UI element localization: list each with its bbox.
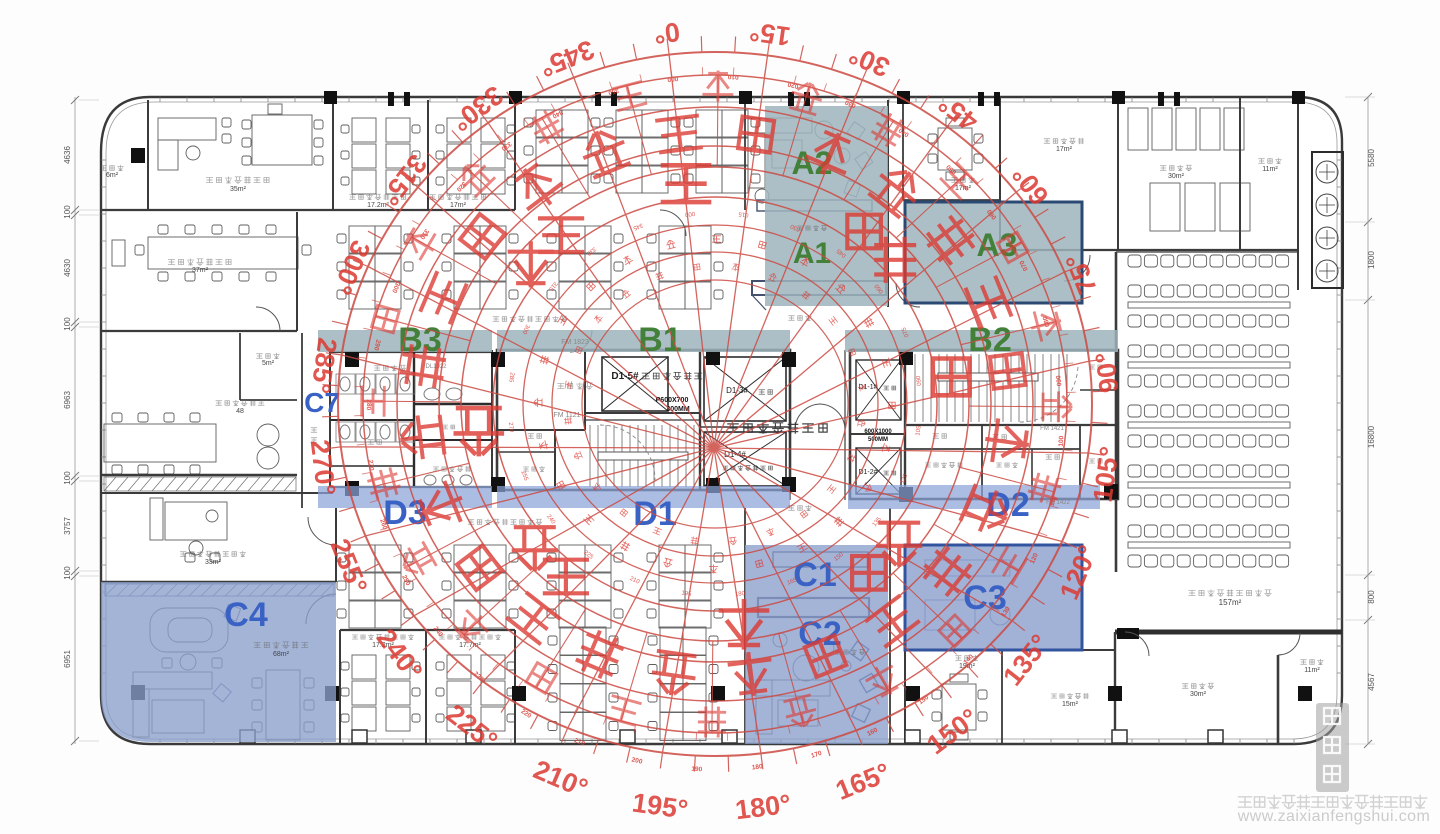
svg-text:100: 100 <box>1058 435 1066 447</box>
svg-text:0°: 0° <box>652 16 681 49</box>
svg-text:010: 010 <box>727 73 739 81</box>
svg-text:16800: 16800 <box>1367 425 1376 448</box>
svg-text:190: 190 <box>691 766 703 774</box>
svg-text:D1-5#: D1-5# <box>611 371 639 382</box>
svg-text:5m²: 5m² <box>262 360 275 367</box>
svg-text:17.2m²: 17.2m² <box>367 202 389 209</box>
svg-text:FM 1421: FM 1421 <box>1040 426 1064 432</box>
svg-text:C4: C4 <box>224 596 268 634</box>
svg-text:15m²: 15m² <box>1062 701 1079 708</box>
svg-text:48: 48 <box>236 408 244 415</box>
svg-text:6m²: 6m² <box>106 172 119 179</box>
svg-text:www.zaixianfengshui.com: www.zaixianfengshui.com <box>1237 808 1430 825</box>
svg-text:500MM: 500MM <box>868 437 888 443</box>
svg-text:6951: 6951 <box>63 650 72 668</box>
svg-text:30m²: 30m² <box>1168 173 1185 180</box>
svg-text:270: 270 <box>366 459 374 471</box>
svg-text:33m²: 33m² <box>205 559 222 566</box>
svg-text:17m²: 17m² <box>450 202 467 209</box>
svg-text:000: 000 <box>667 74 679 82</box>
svg-text:90°: 90° <box>1090 350 1125 394</box>
svg-text:6963: 6963 <box>63 391 72 409</box>
svg-text:30m²: 30m² <box>1190 691 1207 698</box>
svg-text:800: 800 <box>1367 590 1376 604</box>
svg-text:090: 090 <box>1055 375 1063 387</box>
svg-text:180: 180 <box>751 763 763 771</box>
svg-text:100: 100 <box>63 471 72 485</box>
svg-text:100: 100 <box>63 205 72 219</box>
svg-text:5580: 5580 <box>1367 149 1376 167</box>
svg-text:180: 180 <box>735 591 746 598</box>
svg-text:4630: 4630 <box>63 259 72 277</box>
svg-text:11m²: 11m² <box>1262 166 1278 173</box>
svg-text:15°: 15° <box>748 16 793 51</box>
svg-text:1800: 1800 <box>1367 251 1376 269</box>
svg-text:000: 000 <box>684 210 695 217</box>
svg-text:600X1000: 600X1000 <box>864 429 892 435</box>
svg-text:A1: A1 <box>793 237 831 270</box>
svg-text:4567: 4567 <box>1367 673 1376 691</box>
svg-text:17m²: 17m² <box>1056 146 1073 153</box>
svg-text:4636: 4636 <box>63 146 72 164</box>
svg-text:3757: 3757 <box>63 517 72 535</box>
svg-text:11m²: 11m² <box>1304 667 1320 674</box>
svg-text:100: 100 <box>63 317 72 331</box>
svg-text:157m²: 157m² <box>1219 598 1242 607</box>
svg-text:100: 100 <box>63 566 72 580</box>
svg-text:B1: B1 <box>638 321 681 359</box>
svg-text:35m²: 35m² <box>230 186 247 193</box>
svg-text:68m²: 68m² <box>273 651 290 658</box>
svg-text:37m²: 37m² <box>192 267 209 274</box>
